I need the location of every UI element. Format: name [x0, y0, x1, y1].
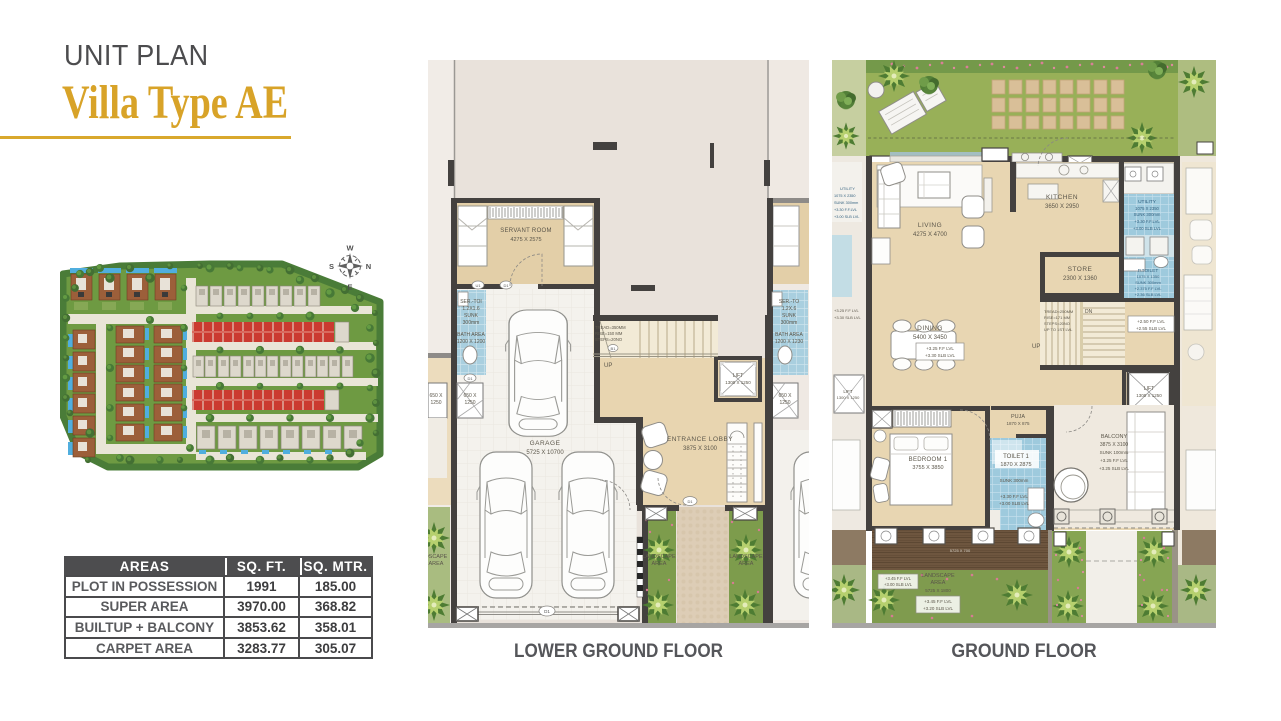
svg-text:+3.30 F.F LVL: +3.30 F.F LVL: [1000, 494, 1028, 499]
svg-text:D1: D1: [687, 499, 693, 504]
svg-text:+2.55 SLB LVL: +2.55 SLB LVL: [1136, 326, 1167, 331]
svg-text:TOILET 1: TOILET 1: [1003, 454, 1029, 460]
svg-text:BATH AREA: BATH AREA: [775, 332, 803, 338]
svg-text:STEPS=20NO: STEPS=20NO: [1044, 321, 1070, 326]
svg-text:1300 X 1250: 1300 X 1250: [1136, 393, 1162, 398]
svg-text:1200 X 1230: 1200 X 1230: [775, 339, 804, 345]
svg-text:AREA: AREA: [652, 561, 667, 567]
svg-text:5725 X 1800: 5725 X 1800: [925, 588, 951, 593]
svg-text:D1: D1: [503, 283, 509, 288]
svg-text:STEPS=20NO: STEPS=20NO: [595, 337, 623, 342]
svg-text:UP: UP: [1032, 344, 1040, 350]
svg-text:1300 X 1250: 1300 X 1250: [837, 395, 860, 400]
svg-text:U1: U1: [475, 283, 481, 288]
svg-text:4275 X 2575: 4275 X 2575: [510, 237, 541, 243]
svg-text:N: N: [366, 262, 371, 271]
svg-text:1870 X 875: 1870 X 875: [1006, 421, 1030, 426]
svg-text:STORE: STORE: [1068, 266, 1093, 273]
svg-text:DN: DN: [1085, 309, 1093, 315]
svg-text:SUNK 300mm: SUNK 300mm: [834, 201, 858, 205]
svg-text:LIFT: LIFT: [733, 373, 743, 379]
svg-text:GARAGE: GARAGE: [530, 440, 561, 447]
svg-text:SUNK: SUNK: [782, 313, 797, 319]
svg-text:D1: D1: [544, 609, 550, 614]
svg-text:650 X: 650 X: [778, 393, 792, 399]
svg-text:LANDSCAPE: LANDSCAPE: [642, 554, 676, 560]
svg-text:+3.25 F.F LVL: +3.25 F.F LVL: [926, 346, 954, 351]
svg-text:2300 X 1360: 2300 X 1360: [1063, 276, 1098, 282]
svg-text:SUNK 100mm: SUNK 100mm: [1100, 450, 1129, 455]
svg-text:RISE=150 MM: RISE=150 MM: [595, 331, 623, 336]
svg-text:5725 X 700: 5725 X 700: [950, 548, 971, 553]
svg-text:ENTRANCE LOBBY: ENTRANCE LOBBY: [667, 436, 733, 443]
svg-text:+3.25 SLB LVL: +3.25 SLB LVL: [1099, 466, 1130, 471]
svg-text:+3.00 SLB LVL: +3.00 SLB LVL: [999, 501, 1030, 506]
svg-text:+3.25 F.F LVL: +3.25 F.F LVL: [834, 308, 859, 313]
svg-text:1.2X1.6: 1.2X1.6: [462, 306, 479, 312]
svg-text:SER.-TOI: SER.-TOI: [460, 299, 482, 305]
svg-text:PUJA: PUJA: [1011, 414, 1025, 420]
svg-text:5725 X 10700: 5725 X 10700: [526, 450, 564, 456]
svg-text:LIVING: LIVING: [918, 222, 942, 229]
svg-text:UP TO 1ST LVL: UP TO 1ST LVL: [1044, 327, 1073, 332]
svg-text:RISE=171 MM: RISE=171 MM: [1044, 315, 1070, 320]
svg-text:1075 X 2350: 1075 X 2350: [834, 194, 856, 198]
svg-text:LANDSCAPE: LANDSCAPE: [921, 573, 955, 579]
svg-text:+3.45 F.F LVL: +3.45 F.F LVL: [924, 599, 952, 604]
svg-text:650 X: 650 X: [429, 393, 443, 399]
svg-text:BALCONY: BALCONY: [1101, 434, 1128, 440]
svg-text:UP: UP: [604, 363, 612, 369]
svg-text:1870 X 2875: 1870 X 2875: [1000, 462, 1031, 468]
svg-text:1250: 1250: [779, 400, 790, 406]
svg-text:LIFT: LIFT: [843, 389, 853, 394]
svg-text:+2.375 F.F LVL: +2.375 F.F LVL: [1135, 286, 1163, 291]
svg-text:AREA: AREA: [931, 580, 946, 586]
svg-text:+2.36 SLB LVL: +2.36 SLB LVL: [1135, 292, 1163, 297]
svg-text:650 X: 650 X: [463, 393, 477, 399]
svg-text:+3.20 SLB LVL: +3.20 SLB LVL: [923, 606, 954, 611]
svg-text:DSCAPE: DSCAPE: [428, 554, 448, 560]
svg-text:1075 X 2350: 1075 X 2350: [1135, 206, 1159, 211]
svg-text:SER.-TO: SER.-TO: [779, 299, 799, 305]
svg-text:4275 X 4700: 4275 X 4700: [913, 232, 948, 238]
svg-text:BEDROOM 1: BEDROOM 1: [909, 457, 948, 463]
svg-text:TREAD=350MM: TREAD=350MM: [595, 325, 626, 330]
svg-text:W: W: [346, 244, 354, 253]
svg-text:UTILITY: UTILITY: [840, 186, 855, 191]
svg-text:UTILITY: UTILITY: [1138, 199, 1157, 205]
svg-text:B1: B1: [611, 346, 617, 351]
svg-text:3650 X 2950: 3650 X 2950: [1045, 204, 1080, 210]
svg-text:+3.00 SLB LVL: +3.00 SLB LVL: [1133, 226, 1162, 231]
svg-text:3755 X 3850: 3755 X 3850: [912, 465, 943, 471]
svg-text:1300 X 1250: 1300 X 1250: [725, 380, 751, 385]
svg-text:3875 X 3100: 3875 X 3100: [683, 446, 718, 452]
svg-text:+3.25 F.F LVL: +3.25 F.F LVL: [1100, 458, 1128, 463]
svg-text:D1: D1: [467, 376, 473, 381]
svg-text:SERVANT ROOM: SERVANT ROOM: [500, 228, 552, 234]
svg-text:1.2X.6: 1.2X.6: [782, 306, 797, 312]
svg-text:SUNK: SUNK: [464, 313, 479, 319]
svg-text:E: E: [347, 283, 352, 292]
svg-text:AREA: AREA: [429, 561, 444, 567]
svg-text:300mm: 300mm: [781, 320, 798, 326]
svg-text:BATH AREA: BATH AREA: [457, 332, 485, 338]
svg-text:SUNK 300mm: SUNK 300mm: [1134, 212, 1161, 217]
svg-text:+2.50 F.F LVL: +2.50 F.F LVL: [1137, 319, 1165, 324]
svg-text:1250: 1250: [464, 400, 475, 406]
svg-text:SUNK 300mm: SUNK 300mm: [1000, 478, 1029, 483]
svg-text:+3.30 SLB LVL: +3.30 SLB LVL: [834, 315, 862, 320]
svg-text:1075 X 1350: 1075 X 1350: [1137, 274, 1160, 279]
svg-text:+3.00 SLB LVL: +3.00 SLB LVL: [884, 582, 913, 587]
svg-text:TREAD=250MM: TREAD=250MM: [1044, 309, 1073, 314]
svg-text:1200 X 1200: 1200 X 1200: [457, 339, 486, 345]
svg-text:LANDSCAPE: LANDSCAPE: [729, 554, 763, 560]
svg-text:+3.30 F.F.LVL: +3.30 F.F.LVL: [834, 208, 857, 212]
svg-text:+3.30 F.F.LVL: +3.30 F.F.LVL: [1134, 219, 1160, 224]
svg-text:+3.45 F.F LVL: +3.45 F.F LVL: [885, 576, 912, 581]
svg-text:LIFT: LIFT: [1144, 386, 1154, 392]
svg-text:300mm: 300mm: [463, 320, 480, 326]
svg-text:5400 X 3450: 5400 X 3450: [913, 335, 948, 341]
svg-text:1250: 1250: [430, 400, 441, 406]
svg-text:SUNK 300mm: SUNK 300mm: [1135, 280, 1161, 285]
svg-text:+3.00 SLB LVL: +3.00 SLB LVL: [834, 215, 859, 219]
svg-text:KITCHEN: KITCHEN: [1046, 194, 1078, 201]
svg-text:AREA: AREA: [739, 561, 754, 567]
svg-text:DINING: DINING: [917, 325, 943, 332]
svg-text:3875 X 3100: 3875 X 3100: [1100, 442, 1129, 448]
svg-text:+3.30 SLB LVL: +3.30 SLB LVL: [925, 353, 956, 358]
svg-text:S: S: [329, 262, 334, 271]
